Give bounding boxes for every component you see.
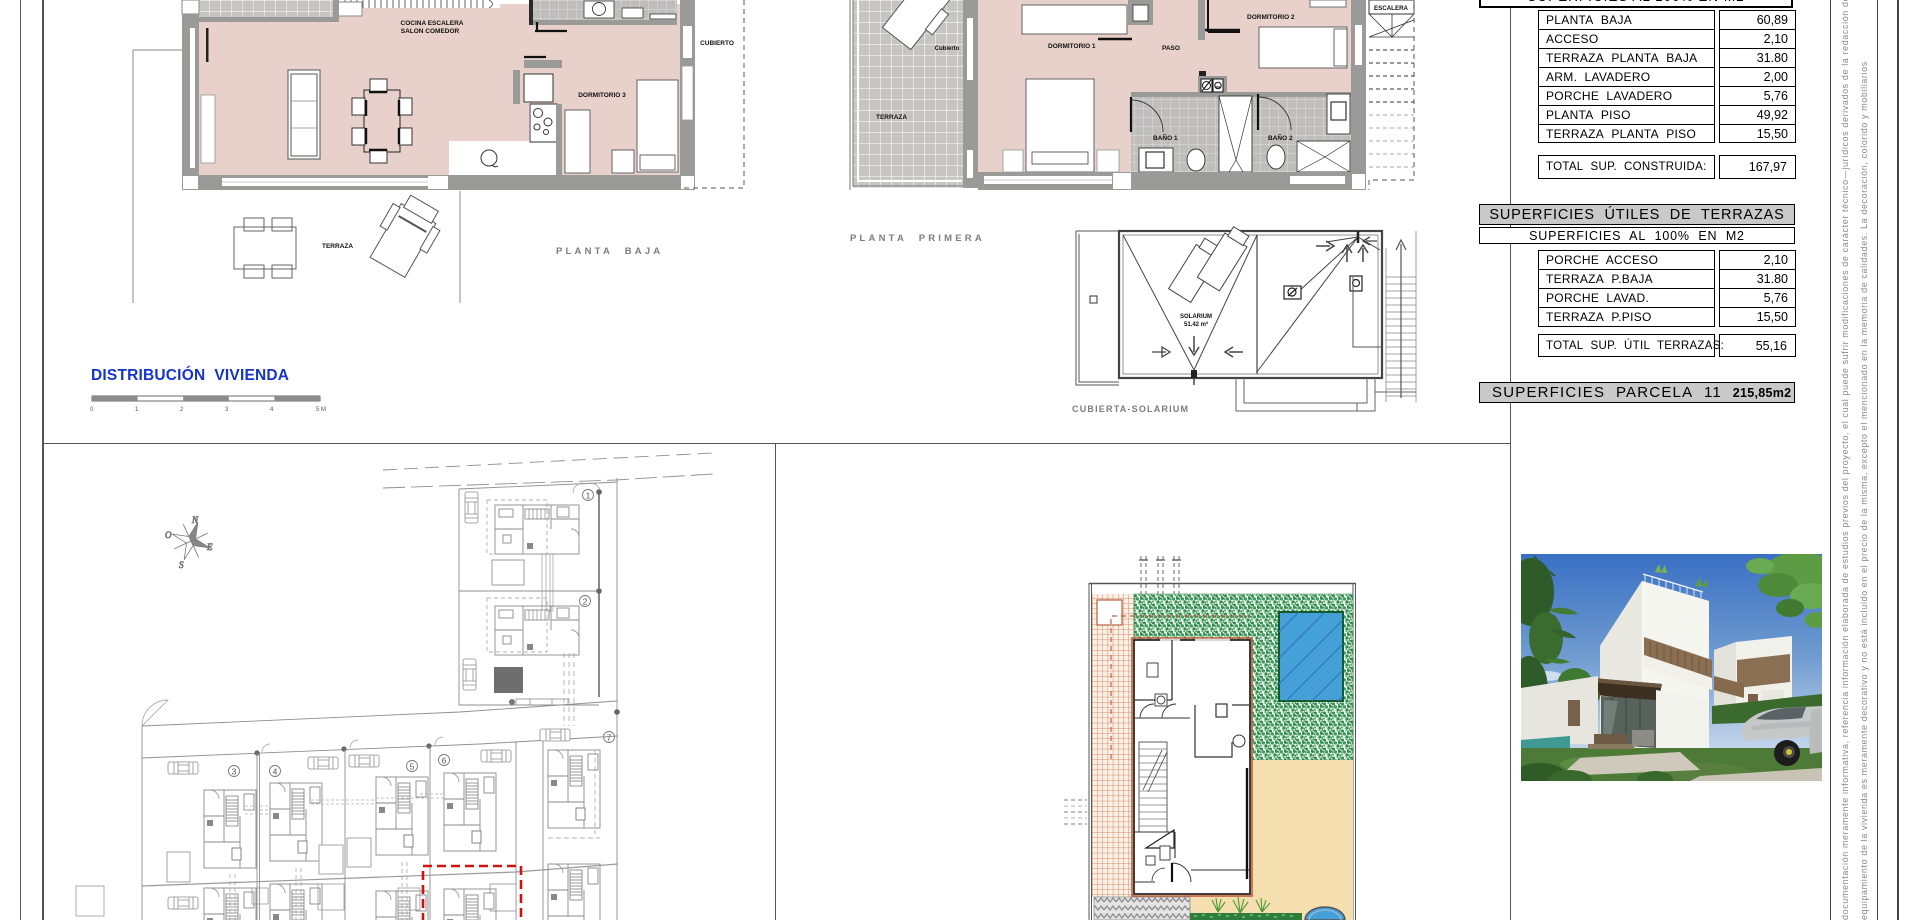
svg-text:N: N (191, 515, 199, 525)
svg-text:1: 1 (135, 407, 139, 413)
svg-text:3: 3 (232, 767, 237, 777)
svg-text:CUBIERTO: CUBIERTO (700, 40, 734, 47)
svg-text:O: O (165, 530, 172, 540)
svg-text:BAÑO 2: BAÑO 2 (1268, 133, 1293, 142)
svg-text:2: 2 (180, 407, 184, 413)
svg-text:ESCALERA: ESCALERA (1374, 5, 1409, 12)
svg-text:DORMITORIO 3: DORMITORIO 3 (578, 92, 626, 99)
svg-text:1: 1 (586, 491, 591, 501)
svg-text:COCINA ESCALERA: COCINA ESCALERA (401, 20, 464, 27)
svg-text:E: E (206, 542, 213, 552)
svg-text:0: 0 (90, 407, 94, 413)
svg-text:7: 7 (607, 733, 612, 743)
svg-text:6: 6 (442, 756, 447, 766)
svg-text:4: 4 (273, 767, 278, 777)
svg-text:TERRAZA: TERRAZA (876, 114, 907, 121)
svg-text:BAÑO 1: BAÑO 1 (1153, 133, 1178, 142)
svg-text:TERRAZA: TERRAZA (322, 243, 353, 250)
svg-text:5: 5 (410, 762, 415, 772)
svg-text:3: 3 (225, 407, 229, 413)
svg-text:PASO: PASO (1162, 45, 1180, 52)
svg-text:S: S (179, 560, 184, 570)
svg-text:51.42 m²: 51.42 m² (1184, 321, 1208, 328)
svg-text:Cubierto: Cubierto (935, 46, 960, 52)
svg-text:SOLARIUM: SOLARIUM (1180, 314, 1212, 320)
svg-text:DORMITORIO 2: DORMITORIO 2 (1247, 14, 1295, 21)
svg-text:5 M: 5 M (316, 407, 326, 413)
svg-text:DORMITORIO 1: DORMITORIO 1 (1048, 43, 1096, 50)
svg-text:SALON COMEDOR: SALON COMEDOR (401, 28, 460, 35)
svg-text:2: 2 (583, 597, 588, 607)
svg-text:4: 4 (270, 407, 274, 413)
